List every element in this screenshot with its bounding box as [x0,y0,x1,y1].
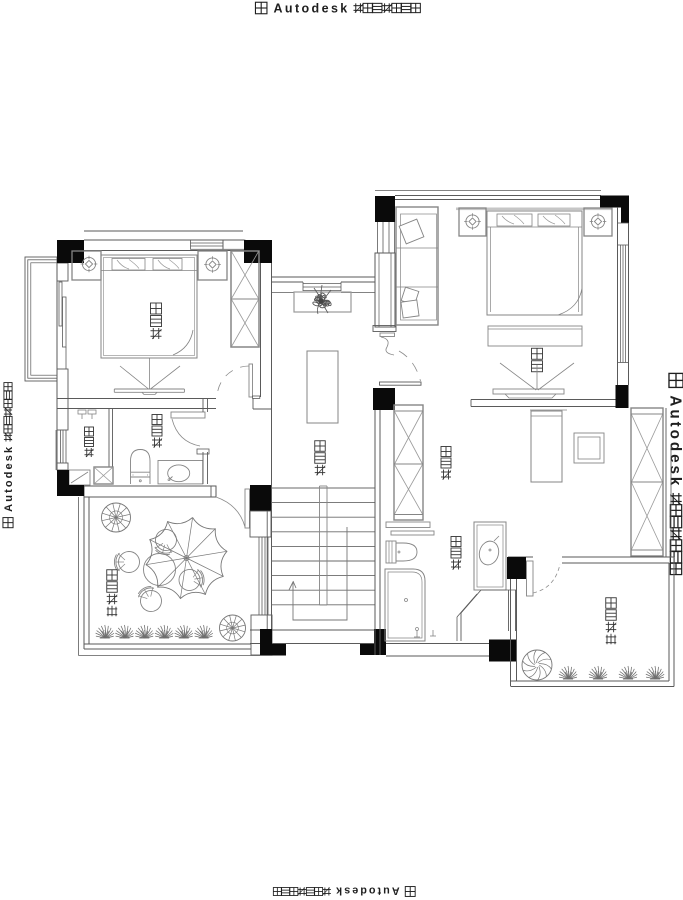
svg-text:Autodesk: Autodesk [667,395,683,488]
svg-text:Autodesk: Autodesk [274,2,350,16]
svg-text:Autodesk: Autodesk [3,445,15,512]
svg-text:Autodesk: Autodesk [334,885,400,897]
